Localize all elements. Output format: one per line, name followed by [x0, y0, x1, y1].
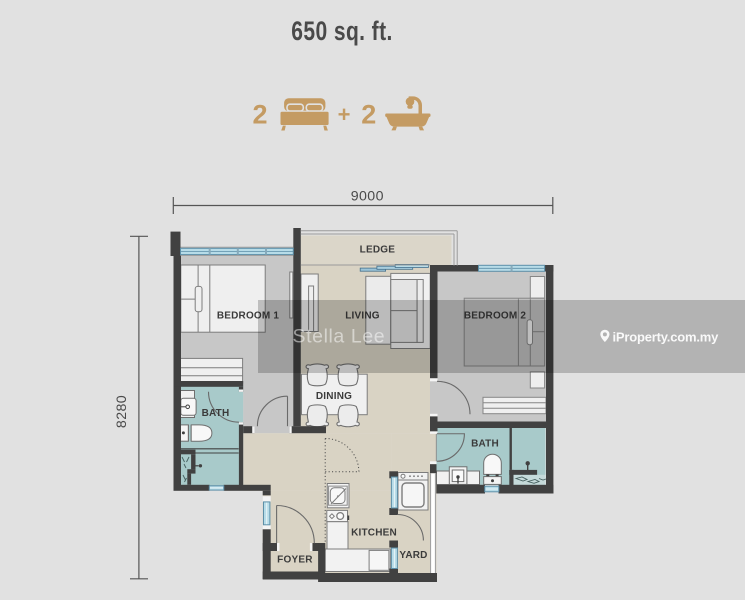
svg-text:8280: 8280: [114, 395, 130, 428]
svg-text:BATH: BATH: [471, 439, 499, 450]
svg-text:2: 2: [361, 100, 376, 130]
svg-text:650 sq. ft.: 650 sq. ft.: [291, 17, 392, 47]
svg-text:DINING: DINING: [316, 391, 352, 402]
svg-text:2: 2: [252, 100, 267, 130]
svg-text:FOYER: FOYER: [277, 555, 313, 566]
svg-text:Stella Lee: Stella Lee: [293, 326, 386, 348]
svg-text:BATH: BATH: [202, 408, 230, 419]
svg-text:iProperty.com.my: iProperty.com.my: [613, 330, 720, 345]
svg-text:9000: 9000: [351, 189, 384, 205]
svg-text:+: +: [338, 102, 351, 127]
svg-text:LEDGE: LEDGE: [360, 244, 396, 255]
svg-text:YARD: YARD: [399, 550, 427, 561]
svg-text:KITCHEN: KITCHEN: [351, 528, 397, 539]
